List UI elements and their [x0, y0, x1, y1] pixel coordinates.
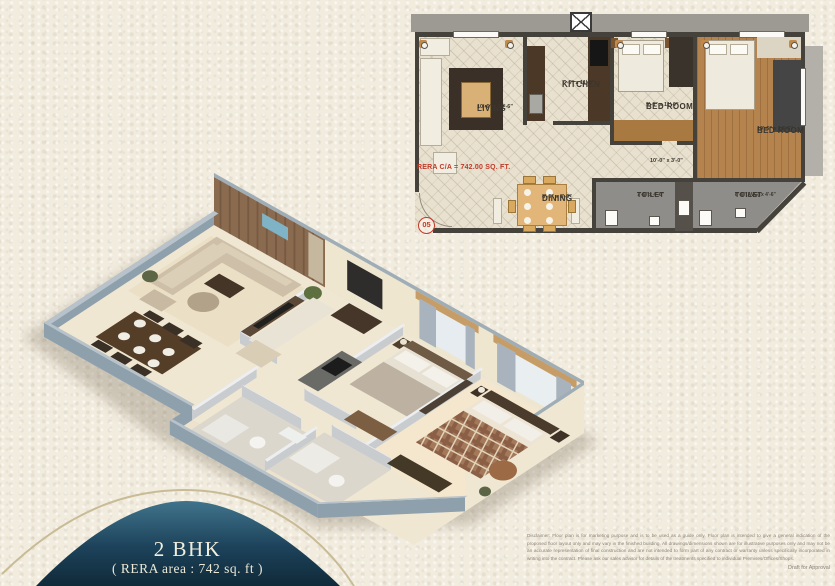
wall-decor	[284, 217, 286, 266]
wash-basin	[649, 216, 660, 226]
wall-decor	[247, 196, 249, 245]
room-dims: 9'-0" x 11'-0"	[646, 102, 679, 109]
sprinkler-icon	[615, 40, 623, 48]
lamp	[478, 387, 485, 393]
wall-decor	[266, 206, 268, 255]
lamp	[400, 339, 407, 345]
wall	[553, 121, 614, 125]
plate	[149, 334, 161, 342]
wall-decor	[294, 222, 296, 271]
room-dims: 10'-6" x 14'-6"	[757, 126, 793, 133]
wash-basin	[735, 208, 746, 218]
duct-shaft	[570, 12, 592, 32]
plant	[142, 270, 158, 282]
bed	[705, 40, 755, 110]
wash-basin	[678, 200, 690, 216]
room-dims: 10'-6" x 19'-6"	[477, 104, 513, 111]
window	[631, 31, 667, 38]
plan-surround-right	[803, 46, 823, 176]
curtain	[466, 324, 475, 369]
wall	[614, 141, 662, 145]
sprinkler-icon	[701, 40, 709, 48]
plant	[479, 487, 491, 497]
plate	[133, 346, 145, 354]
wall-decor	[229, 185, 231, 234]
wall-decor	[238, 191, 240, 240]
unit-type-title: 2 BHK	[60, 537, 315, 562]
floorplan-page: { "title_badge": { "unit_type": "2 BHK",…	[0, 0, 835, 586]
wall	[693, 32, 697, 182]
room-dims: 10'-0" x 3'-0"	[650, 158, 683, 165]
wall-decor	[275, 211, 277, 260]
living-curtain	[308, 232, 323, 284]
wall-decor	[220, 180, 222, 229]
plate	[148, 359, 160, 367]
pouf	[187, 292, 219, 312]
window	[453, 31, 499, 38]
toilet-wc	[250, 437, 266, 449]
wardrobe	[773, 60, 801, 132]
wardrobe	[669, 37, 693, 87]
toilet-wc	[699, 210, 712, 226]
sofa	[420, 58, 442, 146]
bedroom1-wardrobe-band	[614, 120, 693, 141]
kitchen-sink	[529, 94, 543, 114]
draft-approval-note: Draft for Approval	[527, 565, 830, 571]
wall	[610, 32, 614, 145]
plate	[134, 320, 146, 328]
plate	[118, 332, 130, 340]
bed	[618, 40, 664, 92]
accent-chair	[489, 461, 517, 481]
room-dims: 7'-6" x 11'-0"	[562, 80, 595, 87]
stove	[590, 40, 608, 66]
sprinkler-icon	[789, 40, 797, 48]
disclaimer-text: Disclaimer: Floor plan is for marketing …	[527, 532, 830, 562]
plan-surround-top	[411, 14, 809, 32]
wall-decor	[303, 227, 305, 276]
sprinkler-icon	[505, 40, 513, 48]
unit-rera-subtitle: ( RERA area : 742 sq. ft )	[40, 561, 335, 577]
room-dims: 8'-6"(AVG) x 4'-6"	[735, 192, 776, 198]
room-dims: 7'-6" x 4'-6"	[637, 192, 664, 198]
sprinkler-icon	[419, 40, 427, 48]
plate	[163, 348, 175, 356]
wall-decor	[257, 201, 259, 250]
